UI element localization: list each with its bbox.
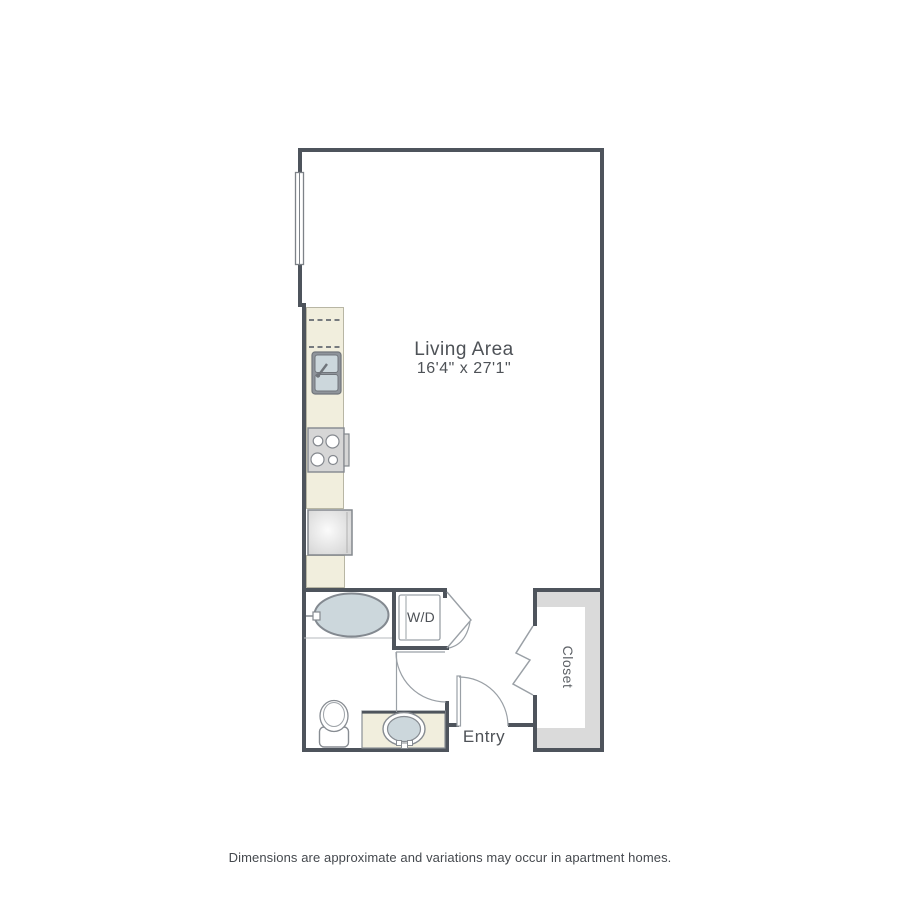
- entry-door: [457, 676, 508, 726]
- refrigerator: [308, 510, 352, 555]
- bathroom-vanity: [362, 711, 445, 749]
- entry-label: Entry: [463, 727, 505, 747]
- bathtub: [304, 594, 392, 639]
- closet-bifold-door: [513, 626, 533, 695]
- floorplan-canvas: Living Area 16'4" x 27'1" W/D Entry Clos…: [0, 0, 900, 900]
- window: [296, 173, 304, 265]
- toilet: [320, 701, 349, 748]
- floorplan-drawing: [0, 0, 900, 900]
- stove: [308, 428, 349, 472]
- washer-dryer-door: [447, 592, 471, 648]
- bathroom-door: [396, 652, 446, 712]
- living-area-dimensions: 16'4" x 27'1": [417, 360, 511, 378]
- washer-dryer-label: W/D: [407, 609, 435, 625]
- closet-label: Closet: [560, 646, 576, 689]
- living-area-label: Living Area: [414, 339, 514, 361]
- kitchen-sink: [312, 352, 341, 394]
- disclaimer-text: Dimensions are approximate and variation…: [0, 850, 900, 865]
